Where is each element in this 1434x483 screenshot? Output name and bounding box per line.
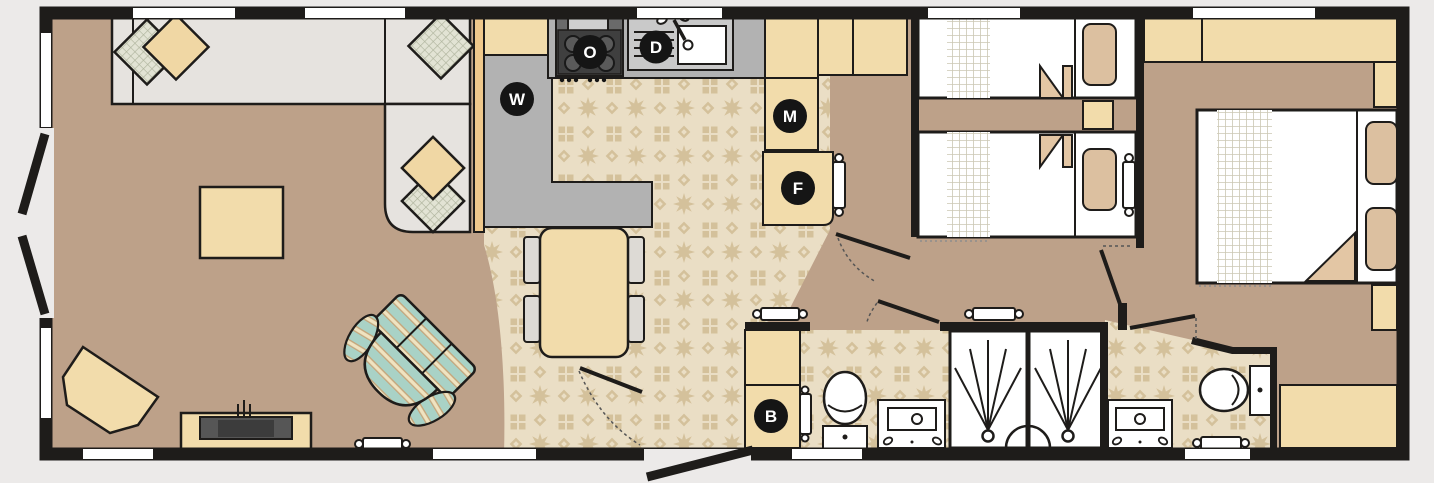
pillow <box>1366 208 1397 270</box>
dining-chair <box>628 237 644 283</box>
oven-badge-letter: O <box>583 43 596 62</box>
washing-machine-badge: W <box>500 82 534 116</box>
master-wardrobe <box>1144 13 1397 62</box>
single-bed-top <box>918 16 1136 98</box>
floorplan-svg: O D W M F B <box>0 0 1434 483</box>
toilet <box>823 372 867 449</box>
window <box>792 449 862 459</box>
oven-badge: O <box>573 35 607 69</box>
floorplan-page: O D W M F B <box>0 0 1434 483</box>
partition-wall <box>474 16 484 232</box>
coffee-table <box>200 187 283 258</box>
bedside-table <box>1372 285 1397 330</box>
twin-wardrobe <box>818 16 907 75</box>
radiator <box>833 154 845 216</box>
vanity-basin <box>878 400 945 448</box>
boiler-badge: B <box>754 399 788 433</box>
boiler-badge-letter: B <box>765 407 777 426</box>
wall-stub <box>1118 303 1127 330</box>
radiator <box>800 387 811 442</box>
bedside-table <box>1083 101 1113 129</box>
corner-cupboard <box>1374 62 1397 107</box>
dining-area <box>524 228 644 357</box>
wall-shower-room-right <box>940 322 1105 331</box>
radiator <box>1123 154 1135 216</box>
wall-ensuite-left <box>1100 322 1108 452</box>
pillow <box>1083 149 1116 210</box>
window <box>1193 8 1315 18</box>
wall-twin-bedroom <box>911 16 919 237</box>
washing-machine-badge-letter: W <box>509 90 526 109</box>
window <box>41 33 51 127</box>
ensuite-toilet <box>1200 366 1271 415</box>
wall-master-bedroom <box>1136 16 1144 248</box>
ensuite-vanity-basin <box>1108 400 1172 448</box>
microwave-badge-letter: M <box>783 107 797 126</box>
radiator <box>965 308 1023 320</box>
tall-cupboard <box>765 16 818 78</box>
dressing-unit <box>1280 385 1397 448</box>
microwave-badge: M <box>773 99 807 133</box>
bed-runner <box>947 132 990 237</box>
dishwasher-badge: D <box>640 31 673 64</box>
dining-chair <box>628 296 644 342</box>
kitchen-cupboard <box>484 16 548 55</box>
wall-ensuite-right <box>1270 347 1277 452</box>
radiator <box>753 308 807 320</box>
fridge-freezer-badge: F <box>781 171 815 205</box>
window <box>433 449 536 459</box>
window <box>41 328 51 418</box>
window <box>637 8 722 18</box>
wall-shower-room-left <box>745 322 810 331</box>
dining-table <box>540 228 628 357</box>
double-bed <box>1197 110 1397 286</box>
pillow <box>1366 122 1397 184</box>
single-bed-bottom <box>918 132 1136 241</box>
window <box>305 8 405 18</box>
dining-chair <box>524 237 540 283</box>
window <box>83 449 153 459</box>
window <box>1185 449 1250 459</box>
bed-runner <box>947 16 990 98</box>
window <box>133 8 235 18</box>
radiator <box>1193 437 1249 449</box>
fridge-freezer-badge-letter: F <box>793 179 803 198</box>
dining-chair <box>524 296 540 342</box>
bed-runner <box>1217 110 1272 283</box>
window <box>928 8 1020 18</box>
dishwasher-badge-letter: D <box>650 38 662 57</box>
pillow <box>1083 24 1116 85</box>
